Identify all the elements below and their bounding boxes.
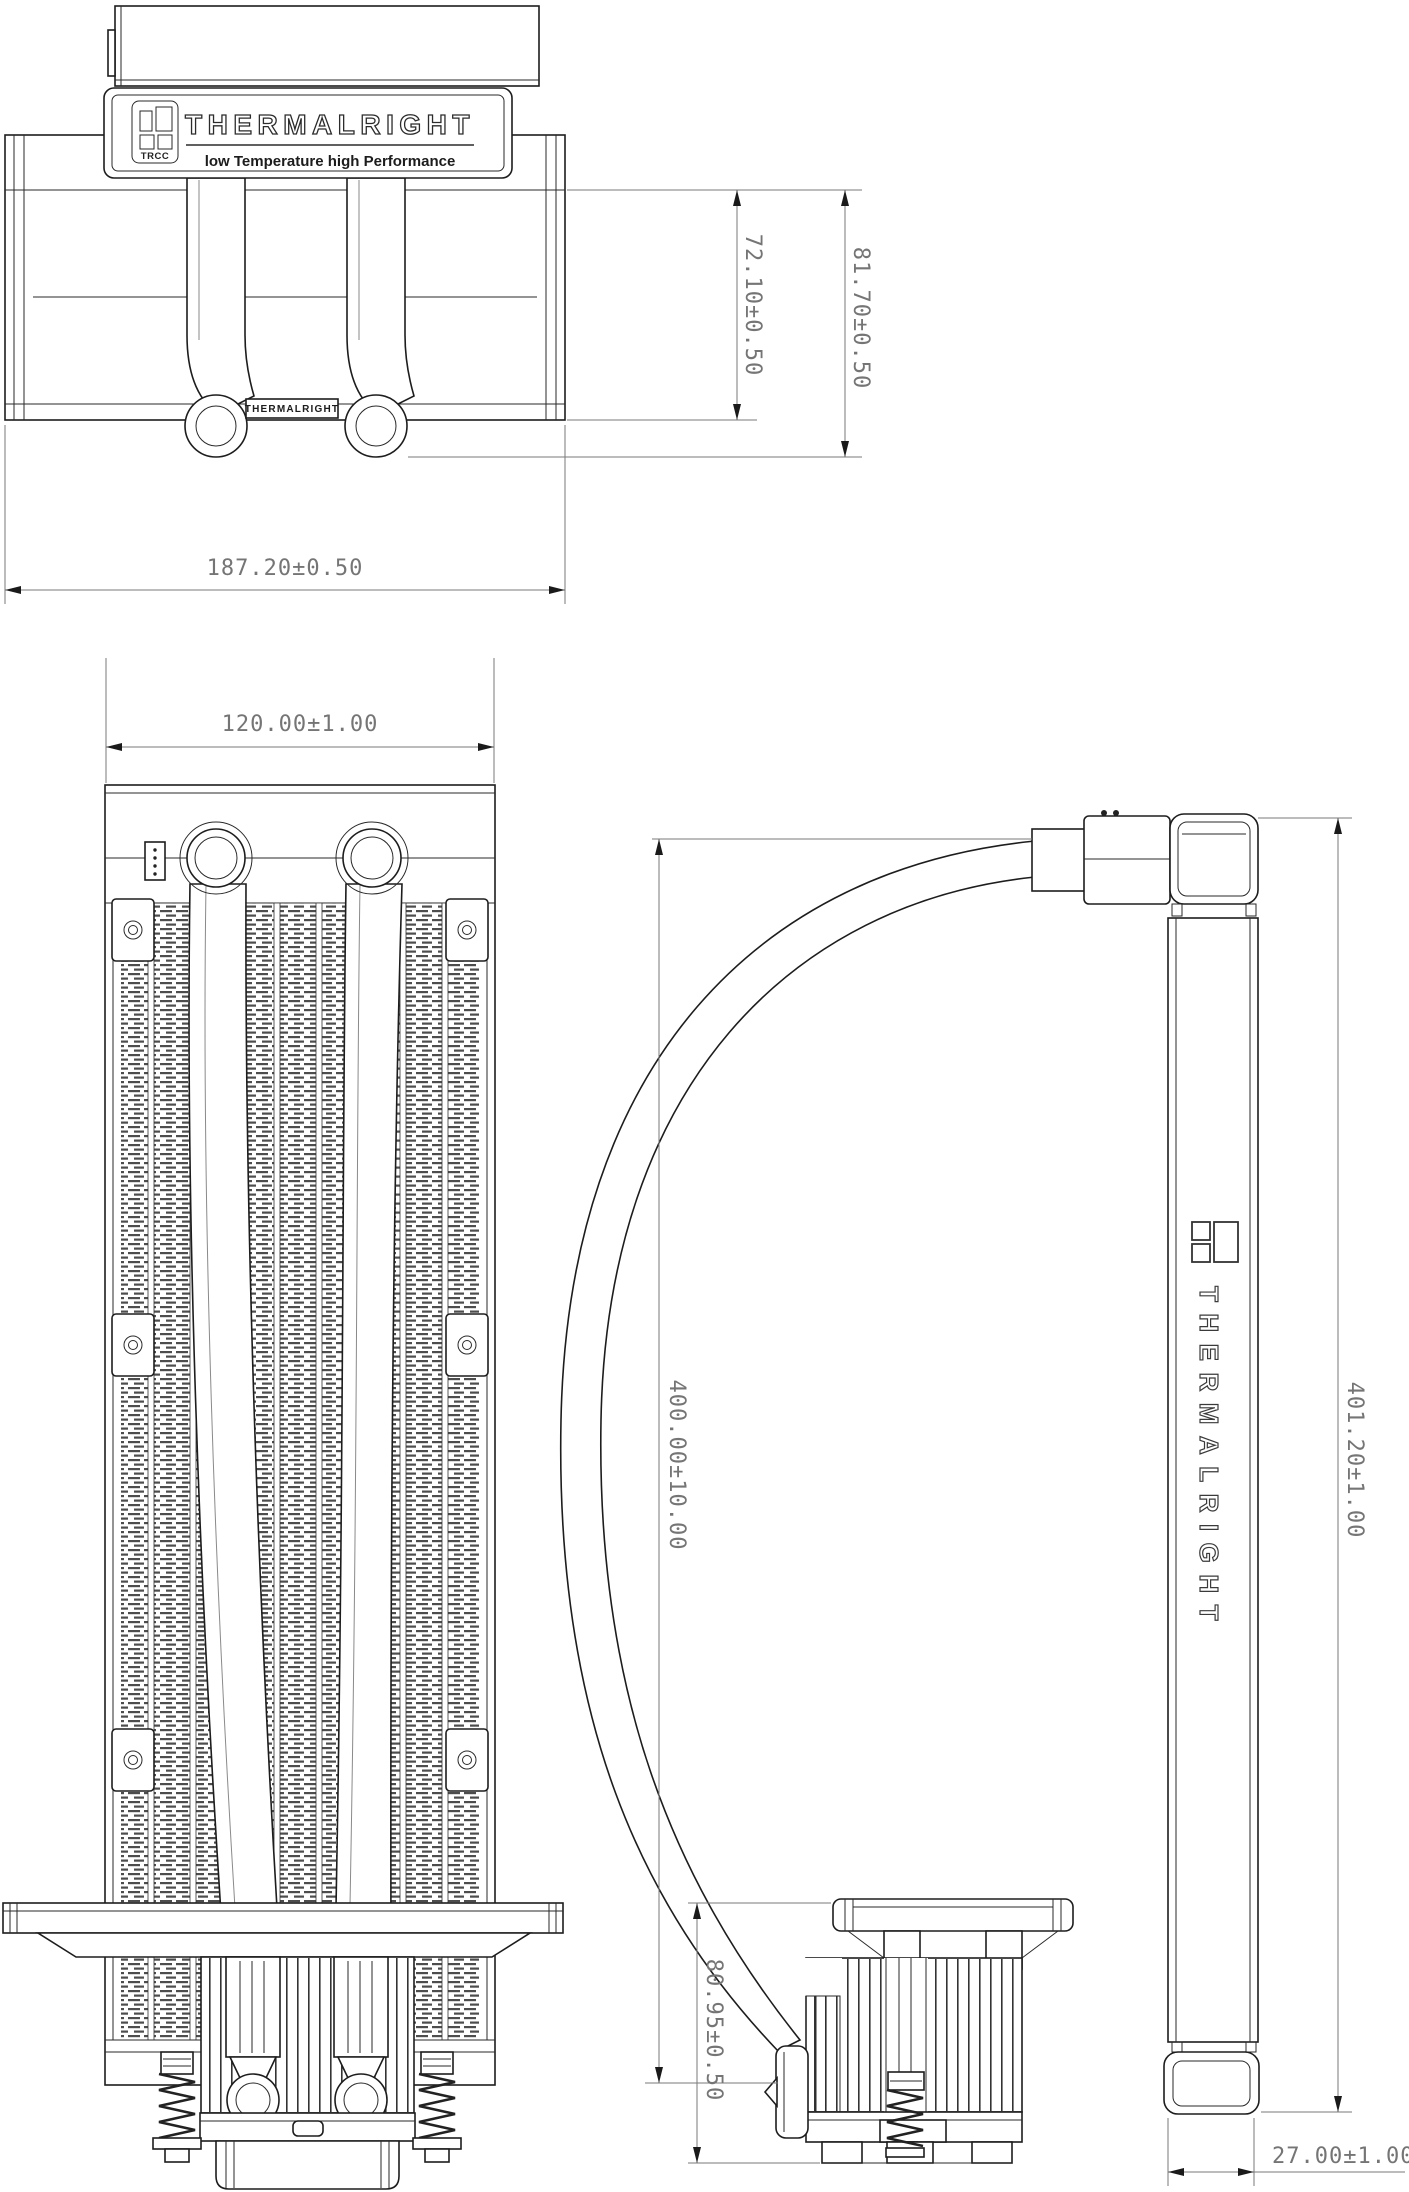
- pump-housing-notch: [108, 30, 115, 76]
- tube-fitting-left-front: [226, 1957, 280, 2126]
- front-view-radiator: 120.00±1.00: [3, 658, 563, 2189]
- technical-drawing-page: THERMALRIGHT TRCC THERMALRIGHT low Tempe…: [0, 0, 1409, 2192]
- coolant-tube-side: [561, 841, 1035, 2051]
- side-view-dimensions: 400.00±10.00 401.20±1.00 80.95±0.50 27.0…: [645, 818, 1409, 2186]
- side-view: THERMALRIGHT: [561, 810, 1409, 2186]
- radiator-body-side: THERMALRIGHT: [1168, 918, 1258, 2042]
- fan-connector: [145, 842, 165, 880]
- front-view-dimensions: 120.00±1.00: [106, 658, 494, 783]
- mounting-spring-right: [413, 2052, 461, 2162]
- dim-pump-overall-height: 81.70±0.50: [848, 247, 873, 389]
- dim-overall-length: 401.20±1.00: [1342, 1382, 1367, 1539]
- dim-tube-length: 400.00±10.00: [664, 1380, 689, 1551]
- dim-pump-height: 80.95±0.50: [701, 1959, 726, 2101]
- brand-tagline: low Temperature high Performance: [205, 153, 456, 170]
- cold-plate-front: [216, 2141, 399, 2189]
- tube-fitting-right-front: [334, 1957, 388, 2126]
- pump-bracket-side: [833, 1899, 1073, 1931]
- tank-fitting-block-side: [1084, 816, 1170, 904]
- tube-elbow-side: [765, 2046, 808, 2138]
- dim-pump-width: 187.20±0.50: [207, 556, 364, 581]
- pump-mounting-bracket-front: [3, 1903, 563, 1957]
- dim-radiator-width: 120.00±1.00: [222, 712, 379, 737]
- coolant-tube-right-top-view: [345, 178, 414, 457]
- pump-side-view: [765, 1899, 1073, 2163]
- logo-plate: TRCC THERMALRIGHT low Temperature high P…: [104, 88, 512, 178]
- tube-fitting-side: [1032, 829, 1086, 891]
- bleed-screw-dot: [1113, 810, 1119, 816]
- coolant-tube-left-top-view: [185, 178, 254, 457]
- pump-top-housing: [115, 6, 539, 86]
- dim-pump-body-height: 72.10±0.50: [740, 234, 765, 376]
- pump-mini-label: THERMALRIGHT: [245, 404, 339, 415]
- radiator-top-cap-side: [1170, 814, 1258, 916]
- brand-logo-text: THERMALRIGHT: [185, 109, 475, 140]
- top-view-pump-head: THERMALRIGHT TRCC THERMALRIGHT low Tempe…: [5, 6, 873, 604]
- bleed-screw-dot: [1101, 810, 1107, 816]
- radiator-bottom-cap-side: [1164, 2042, 1259, 2114]
- pump-block-front: [200, 1957, 415, 2189]
- side-brand-vertical-text: THERMALRIGHT: [1194, 1286, 1224, 1632]
- radiator-fin-core: [112, 899, 488, 2040]
- aio-cooler-drawing: THERMALRIGHT TRCC THERMALRIGHT low Tempe…: [0, 0, 1409, 2192]
- dim-radiator-thickness: 27.00±1.00: [1272, 2144, 1409, 2169]
- trcc-badge: TRCC: [141, 151, 169, 162]
